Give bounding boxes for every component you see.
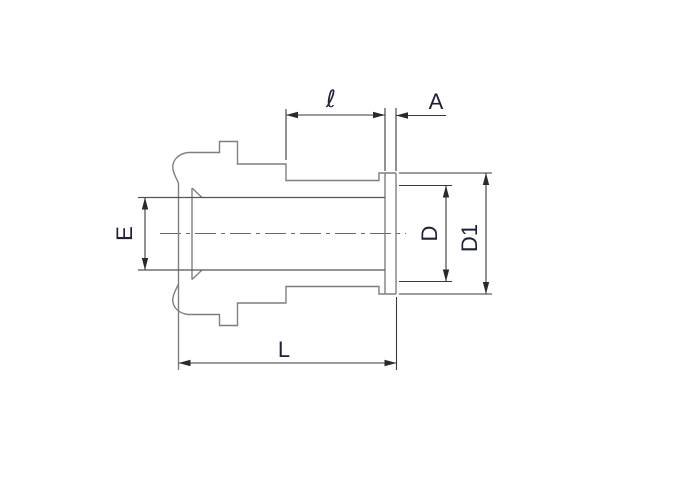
a-arrow	[396, 112, 408, 118]
a-label: A	[429, 89, 444, 114]
l-label: L	[278, 337, 290, 362]
dimension-ell: ℓ	[286, 85, 385, 171]
dimension-e: E	[112, 198, 148, 271]
drawing-canvas: ℓ A E D D1 L	[0, 0, 694, 489]
dimension-a: A	[396, 89, 446, 171]
d-arrow-top	[443, 186, 449, 198]
d1-arrow-top	[483, 173, 489, 185]
front-chamfer-bottom	[192, 270, 202, 280]
e-arrow-top	[142, 198, 148, 210]
upper-arc	[173, 153, 188, 184]
l-arrow-left	[179, 360, 191, 366]
part-outline	[173, 142, 396, 371]
dimension-length: L	[179, 297, 397, 370]
front-chamfer-top	[192, 188, 202, 198]
lower-arc	[173, 284, 188, 315]
lower-profile	[188, 287, 396, 326]
ell-arrow-right	[373, 112, 385, 118]
ell-arrow-left	[286, 112, 298, 118]
e-label: E	[112, 226, 137, 241]
d-label: D	[417, 226, 442, 242]
e-arrow-bottom	[142, 258, 148, 270]
upper-profile	[188, 142, 396, 181]
ell-label: ℓ	[325, 85, 336, 113]
dimension-d: D	[399, 186, 452, 282]
l-arrow-right	[385, 360, 397, 366]
d-arrow-bottom	[443, 270, 449, 282]
d1-label: D1	[457, 224, 482, 252]
fitting-technical-drawing: ℓ A E D D1 L	[0, 0, 694, 489]
d1-arrow-bottom	[483, 282, 489, 294]
